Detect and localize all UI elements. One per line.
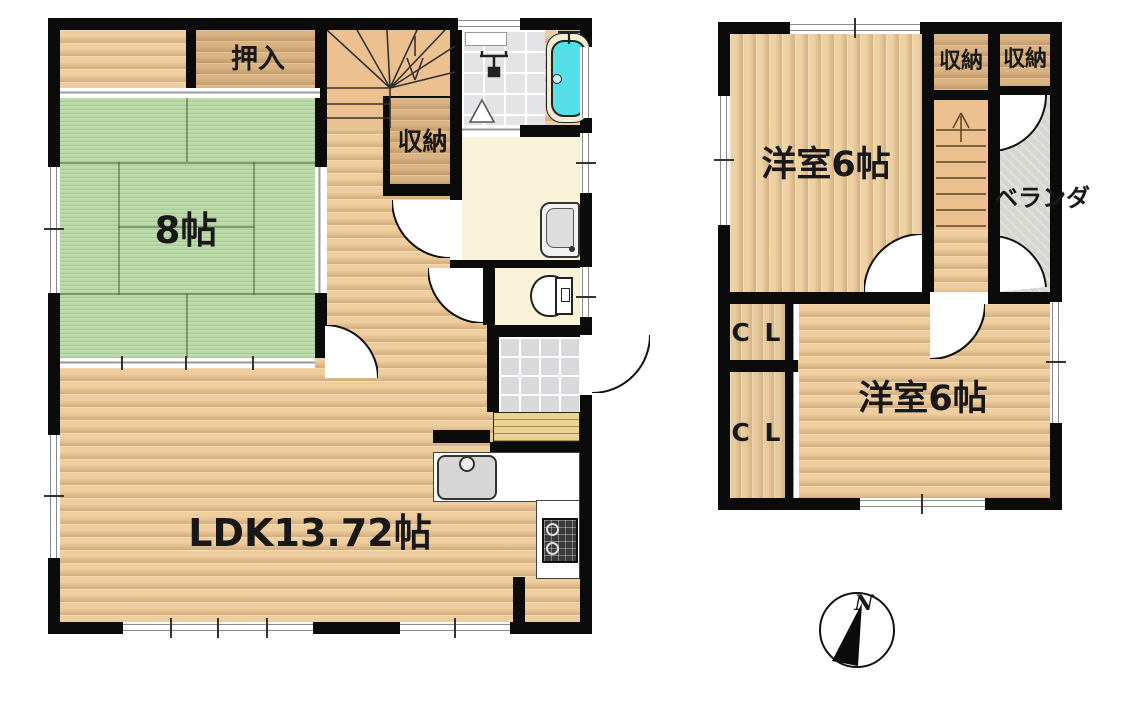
window-tick [921,494,923,514]
wall [934,90,988,100]
wood-nook [60,30,186,88]
closet-cl-lower-label: C L [730,414,785,450]
window-tick [576,162,596,164]
wall [483,268,495,325]
tatami-mat-line [60,162,320,164]
toilet-handle [561,288,570,302]
lower-room-door-gap [930,292,988,304]
window-tick [217,618,219,638]
wall [988,34,1000,100]
bath-faucet-icon [556,28,582,48]
ldk-label: LDK13.72帖 [150,510,470,556]
western-room-upper-label: 洋室6帖 [736,140,916,190]
wall [785,304,793,360]
window [48,167,60,293]
entrance-step [493,412,580,442]
second-floor-plan: 洋室6帖 収納 収納 [718,22,1062,510]
wall [730,360,798,372]
washroom-door-gap [450,200,462,260]
wall [487,325,580,337]
floor-plan-canvas: 押入 8帖 収納 [0,0,1124,704]
shower-fixture-icon [476,48,516,88]
window-tick [44,495,64,497]
window-tick [1046,361,1066,363]
sliding-door [60,88,320,98]
door-tick [252,356,254,370]
wall [450,260,580,268]
tatami-mat-line [186,98,188,162]
window-tick [170,618,172,638]
wall [487,337,499,412]
vanity-drain [569,246,575,252]
wall [1000,86,1050,95]
wall [186,30,196,88]
first-floor-plan: 押入 8帖 収納 [48,18,592,634]
window-tick [714,159,734,161]
sliding-door [60,358,315,368]
vanity-sink-bowl [546,208,574,248]
closet-door-line [793,372,799,498]
hall-ldk-door-arc [325,325,378,378]
compass: N [818,590,896,670]
toilet-door-arc [428,268,483,323]
storage-2f-left-label: 収納 [934,34,988,90]
bath-door [462,125,520,137]
staircase-2f-treads [934,100,988,230]
washroom-door-arc [392,200,450,258]
window-tick [266,618,268,638]
door-tick [185,356,187,370]
wall [785,372,793,498]
veranda-door-arc-top [1000,95,1051,151]
compass-north-label: N [850,591,878,613]
door-tick [121,356,123,370]
window [458,18,520,30]
wall [520,125,580,137]
storage-2f-right-label: 収納 [1000,34,1050,86]
veranda-label: ベランダ [994,184,1124,212]
bathtub-knob [552,74,562,84]
window [580,267,592,317]
wall [490,442,580,452]
tatami-room-label: 8帖 [106,207,266,253]
western-room-lower-label: 洋室6帖 [823,374,1023,424]
window-tick [44,228,64,230]
tatami-mat-line [186,293,188,358]
oshiire-label: 押入 [196,30,320,88]
lower-room-door-arc2 [930,304,985,359]
window-tick [454,618,456,638]
closet-door-line [793,304,799,360]
bath-counter [465,32,507,46]
stove-burner [546,523,559,536]
genkan-entrance-tile [499,337,580,412]
stove-burner [546,542,559,555]
upper-room-door-arc [864,234,922,292]
window [580,47,592,118]
window-tick [854,18,856,38]
wall [718,292,1062,304]
kitchen-faucet [459,456,475,472]
closet-cl-upper-label: C L [730,304,785,360]
entrance-door-arc [592,335,650,393]
tatami-mat-line [60,293,320,295]
window-tick [576,296,596,298]
wall [922,34,934,292]
entrance-door-gap [580,335,592,395]
sliding-door [315,167,327,293]
veranda-door-arc-bottom [1000,236,1051,292]
bath-drain-icon [468,98,496,124]
stair-hall-2f [934,230,988,292]
wall [513,577,525,622]
wall [1050,22,1062,510]
wall [433,430,490,443]
storage-1f-label: 収納 [390,110,455,172]
